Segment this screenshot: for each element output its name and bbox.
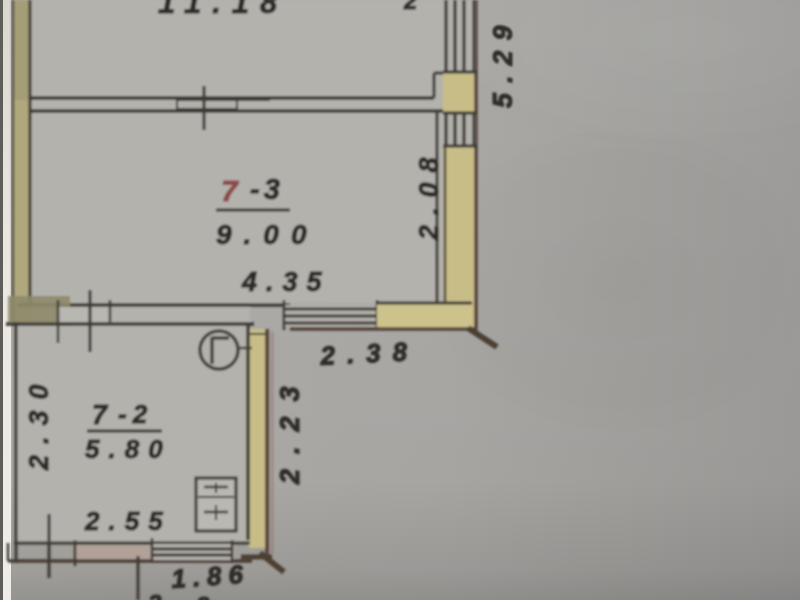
svg-text:9.00: 9.00 bbox=[216, 219, 319, 250]
svg-text:2: 2 bbox=[147, 590, 162, 600]
svg-text:2.08: 2.08 bbox=[414, 147, 444, 241]
svg-text:2.38: 2.38 bbox=[319, 336, 420, 371]
svg-text:-3: -3 bbox=[250, 173, 284, 205]
svg-text:2.23: 2.23 bbox=[275, 371, 305, 485]
svg-text:2.55: 2.55 bbox=[84, 506, 172, 536]
svg-text:-2: -2 bbox=[118, 399, 153, 429]
svg-text:7: 7 bbox=[221, 174, 239, 207]
svg-text:11.18: 11.18 bbox=[158, 0, 288, 20]
svg-text:7: 7 bbox=[92, 400, 109, 430]
svg-text:1.86: 1.86 bbox=[170, 559, 251, 594]
svg-text:5.80: 5.80 bbox=[85, 434, 172, 464]
svg-text:5.29: 5.29 bbox=[488, 15, 518, 108]
svg-text:2: 2 bbox=[195, 592, 210, 600]
svg-text:4.35: 4.35 bbox=[241, 267, 331, 297]
svg-text:2: 2 bbox=[403, 0, 418, 14]
svg-text:2.30: 2.30 bbox=[24, 373, 54, 471]
